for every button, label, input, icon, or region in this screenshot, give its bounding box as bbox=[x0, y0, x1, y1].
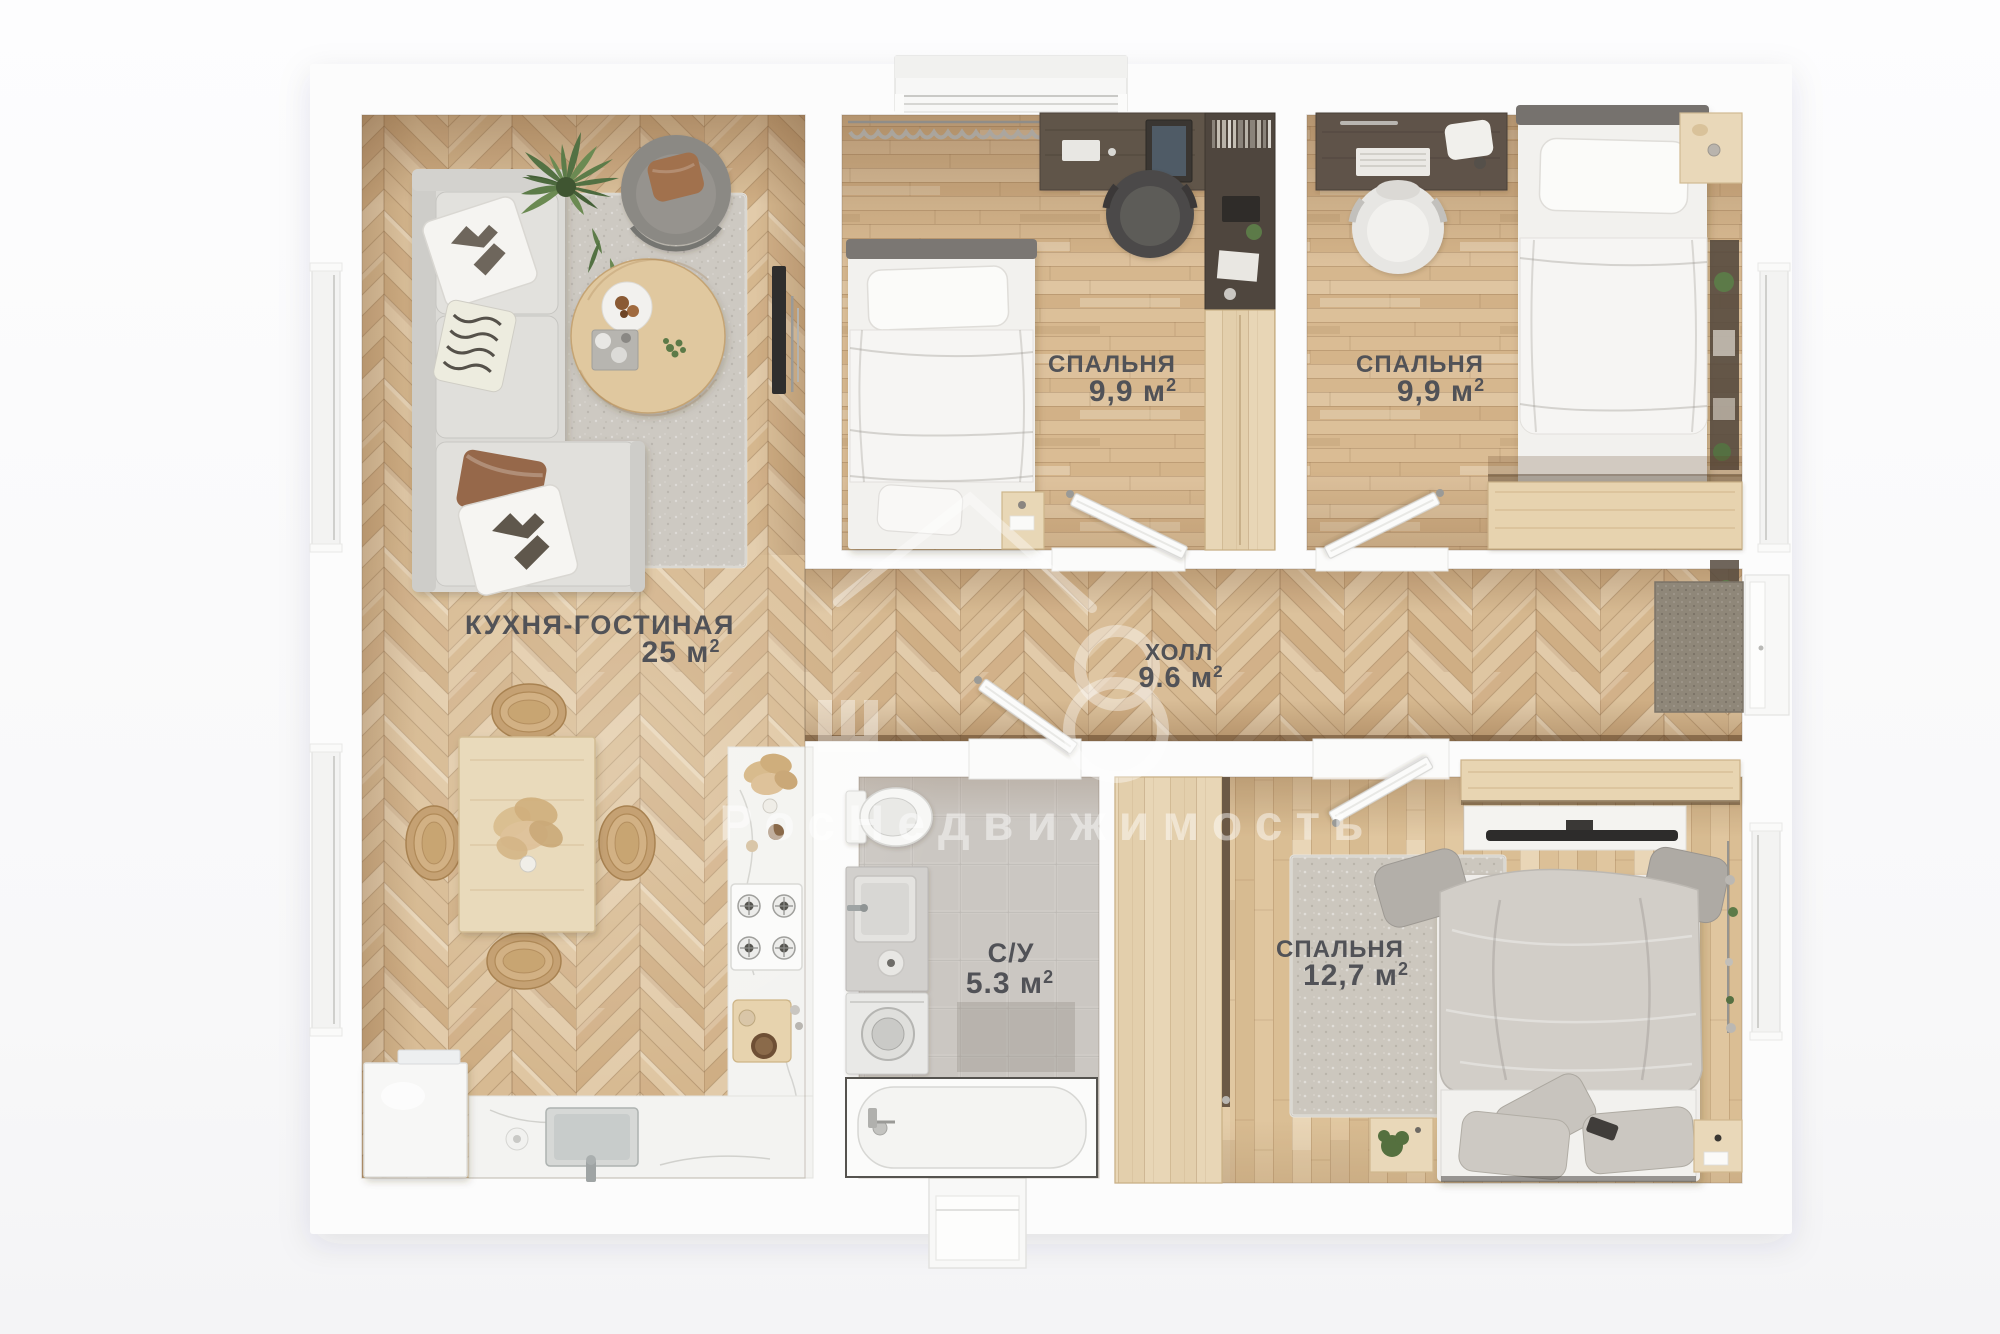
svg-text:12,7 м2: 12,7 м2 bbox=[1303, 959, 1409, 992]
svg-text:СПАЛЬНЯ: СПАЛЬНЯ bbox=[1048, 351, 1176, 378]
svg-text:9,9 м2: 9,9 м2 bbox=[1397, 375, 1485, 408]
svg-text:25 м2: 25 м2 bbox=[642, 636, 721, 669]
svg-text:РосНедвижимость: РосНедвижимость bbox=[719, 795, 1376, 851]
svg-text:5.3 м2: 5.3 м2 bbox=[966, 967, 1054, 1000]
svg-text:9,9 м2: 9,9 м2 bbox=[1089, 375, 1177, 408]
svg-text:СПАЛЬНЯ: СПАЛЬНЯ bbox=[1356, 351, 1484, 378]
svg-text:9.6 м2: 9.6 м2 bbox=[1138, 662, 1223, 694]
svg-text:С/У: С/У bbox=[988, 938, 1035, 968]
